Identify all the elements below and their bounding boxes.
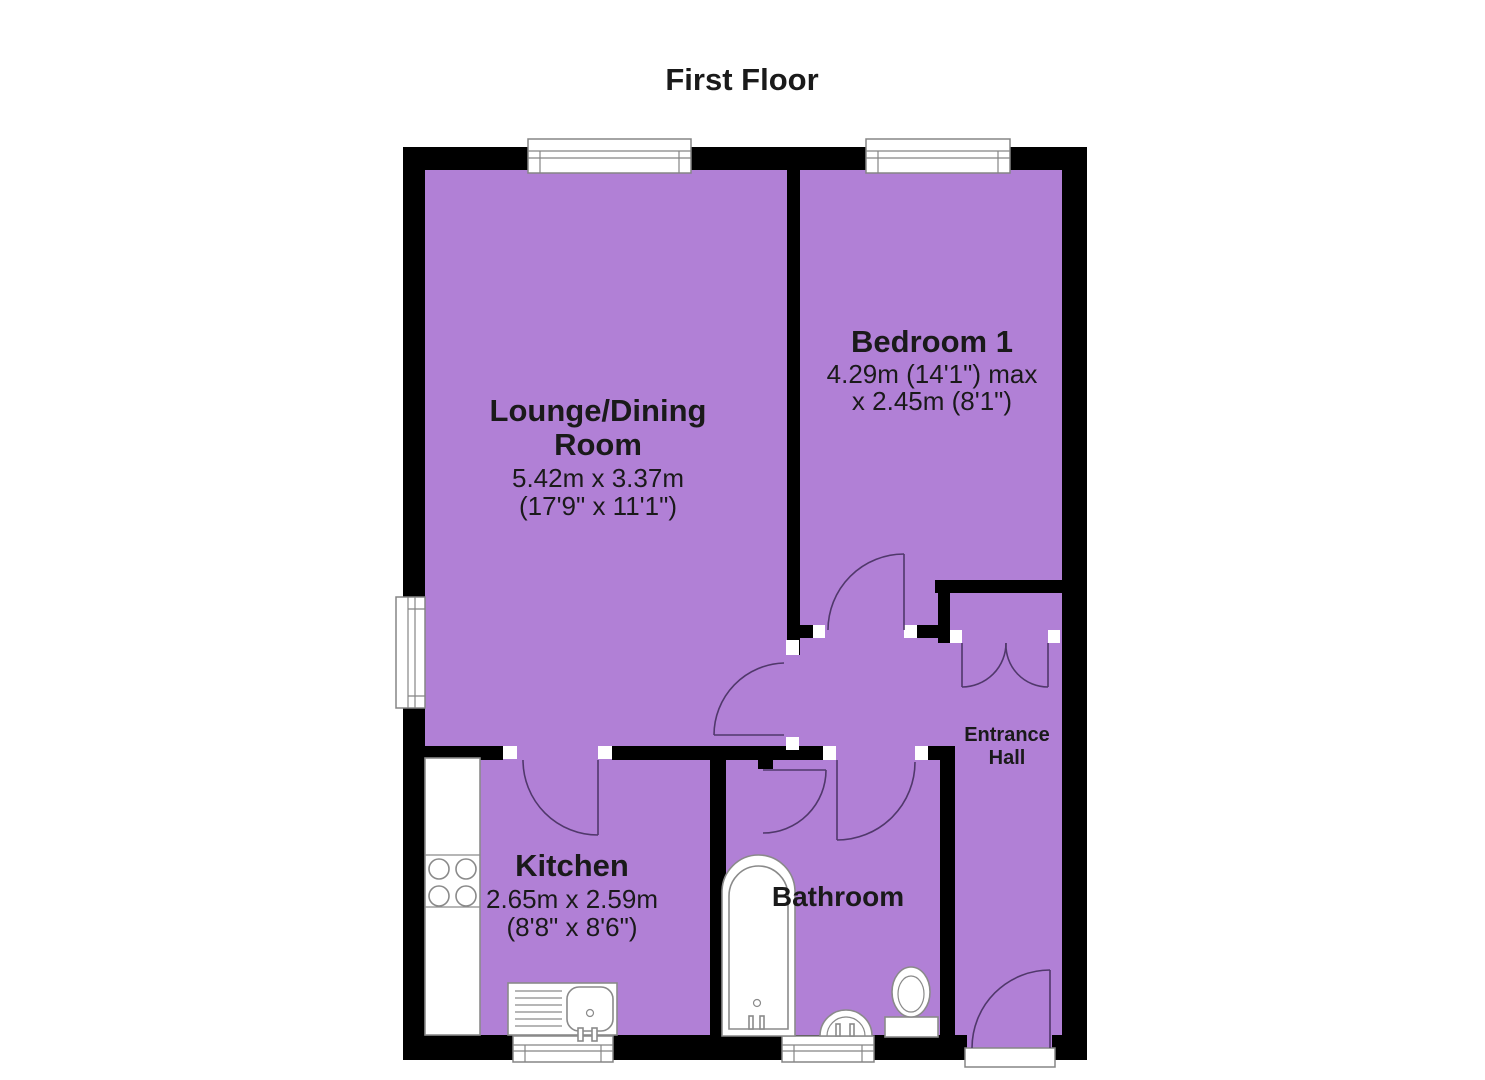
- window-kitchen-bottom: [513, 1036, 613, 1062]
- bedroom1-dim-line2: x 2.45m (8'1"): [852, 386, 1012, 416]
- lounge-name-line1: Lounge/Dining: [490, 393, 707, 428]
- hall-name-line1: Entrance: [964, 724, 1050, 746]
- window-lounge-left: [396, 597, 425, 708]
- lounge-dim-imperial: (17'9" x 11'1"): [519, 491, 677, 521]
- wall-lounge-bedroom: [787, 170, 800, 655]
- bathroom-name: Bathroom: [772, 881, 904, 912]
- bedroom1-label: Bedroom 1 4.29m (14'1") max x 2.45m (8'1…: [827, 324, 1038, 416]
- floorplan-page: First Floor Lounge/Dining Room 5.42m x 3…: [0, 0, 1485, 1080]
- bedroom1-name: Bedroom 1: [851, 324, 1013, 359]
- floorplan-drawing: First Floor Lounge/Dining Room 5.42m x 3…: [0, 0, 1485, 1080]
- kitchen-dim-imperial: (8'8" x 8'6"): [507, 912, 638, 942]
- wall-bathroom-hall: [940, 746, 955, 1037]
- wall-cupboard-top: [935, 580, 1063, 593]
- window-lounge-top: [528, 139, 691, 173]
- wall-bedroom-hall-b: [917, 625, 938, 638]
- wall-bedroom-hall-a: [797, 625, 813, 638]
- window-bathroom-bottom: [782, 1036, 874, 1062]
- kitchen-name: Kitchen: [515, 848, 629, 883]
- lounge-dim-metric: 5.42m x 3.37m: [512, 463, 684, 493]
- wall-right: [1062, 147, 1087, 1060]
- entrance-opening: [965, 1035, 1055, 1067]
- hall-name-line2: Hall: [989, 747, 1026, 769]
- bedroom1-dim-line1: 4.29m (14'1") max: [827, 359, 1038, 389]
- kitchen-worktop: [425, 758, 480, 1035]
- page-title: First Floor: [665, 62, 818, 97]
- wall-cupboard-side: [938, 592, 950, 643]
- kitchen-dim-metric: 2.65m x 2.59m: [486, 884, 658, 914]
- kitchen-sink-icon: [508, 983, 617, 1041]
- lounge-name-line2: Room: [554, 427, 642, 462]
- entrance-threshold: [965, 1048, 1055, 1067]
- wall-stub: [758, 760, 773, 769]
- window-bedroom-top: [866, 139, 1010, 173]
